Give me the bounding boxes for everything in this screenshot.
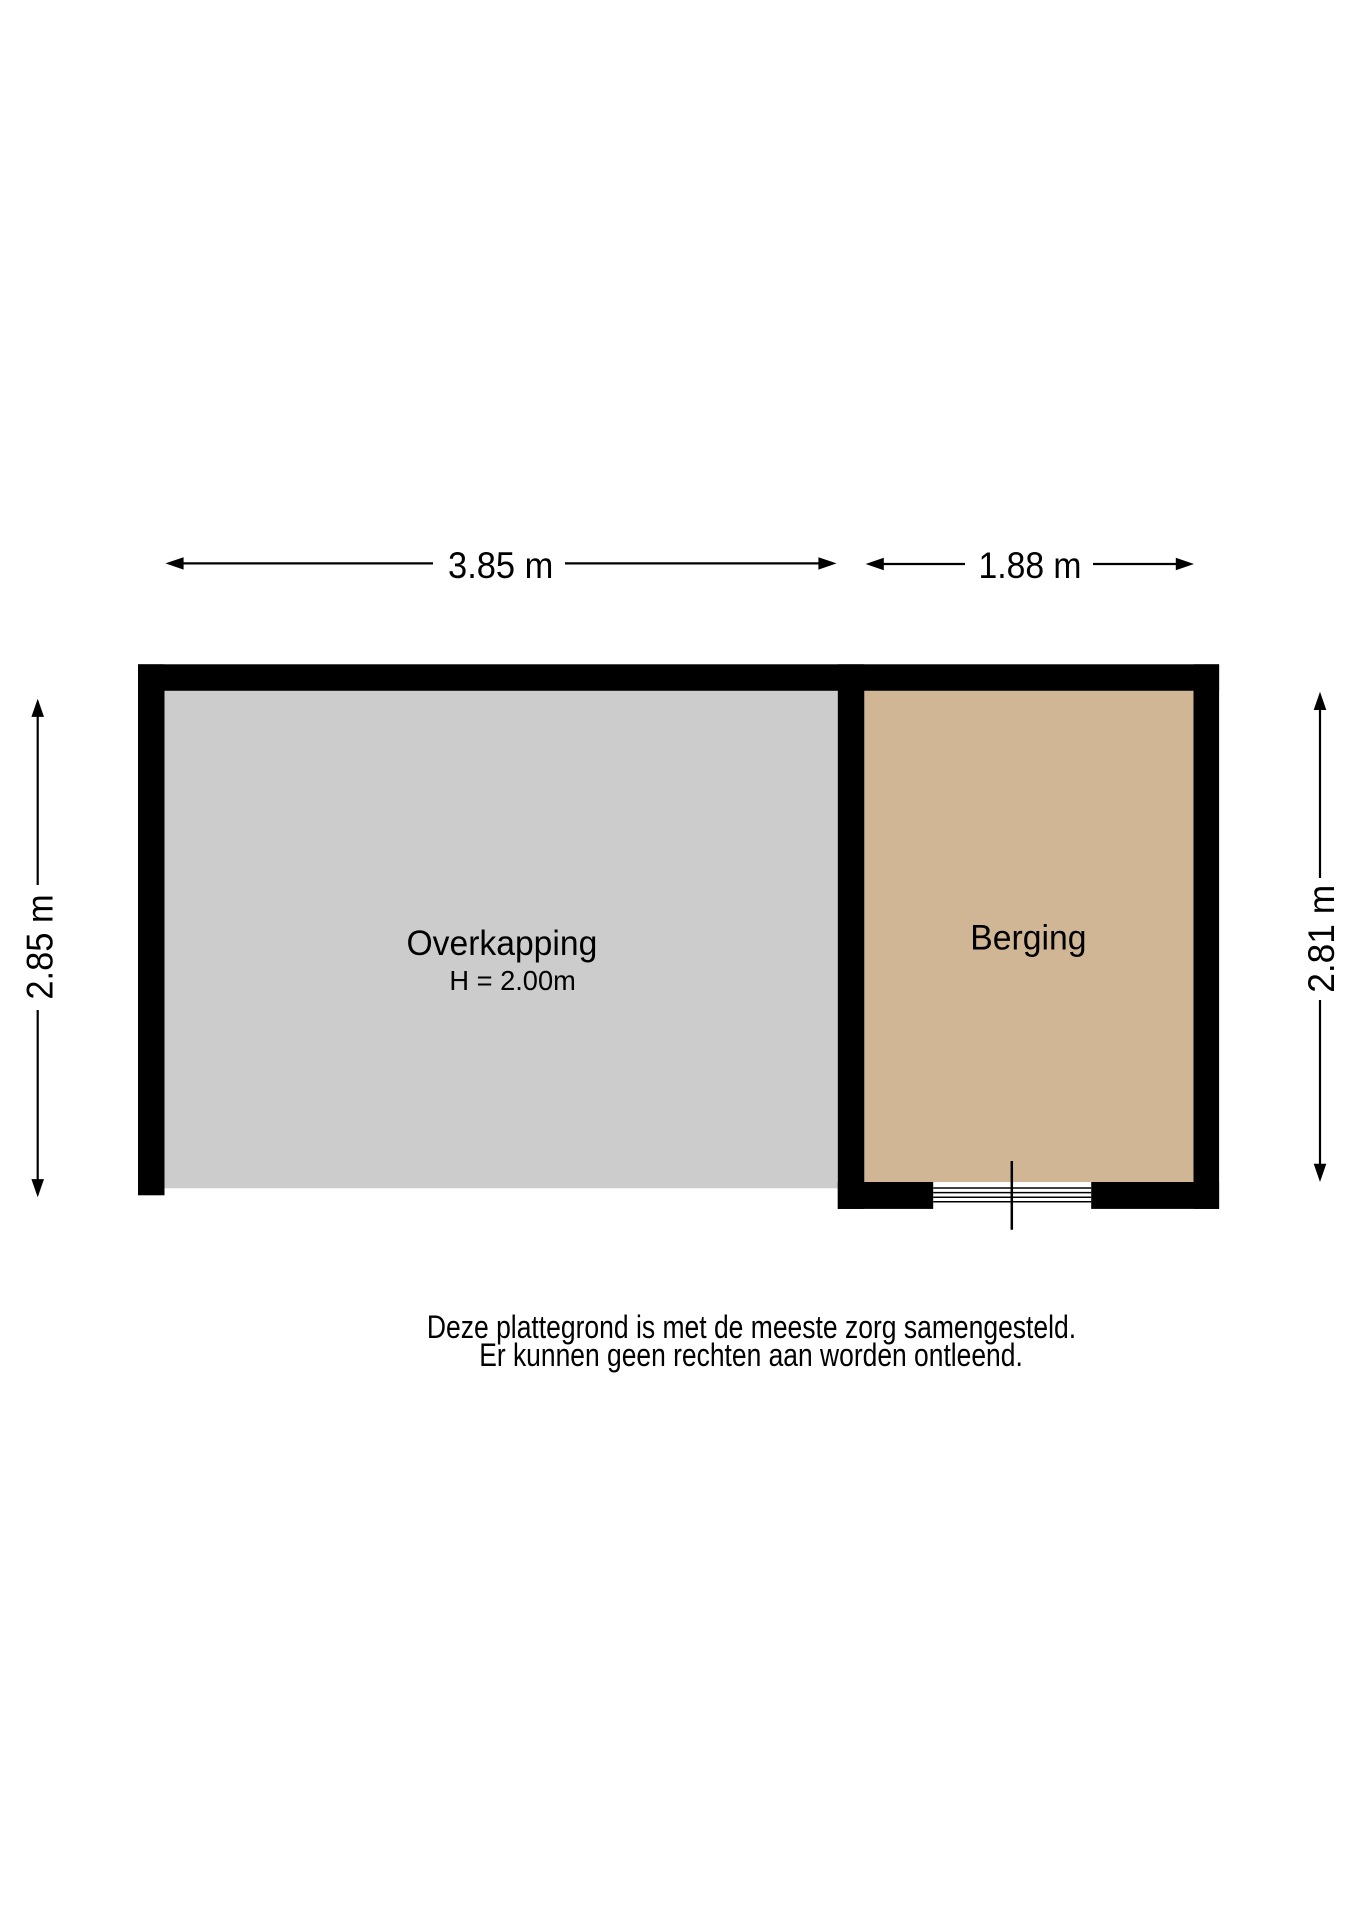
svg-text:Er kunnen geen rechten aan wor: Er kunnen geen rechten aan worden ontlee… [479,1337,1023,1373]
svg-text:Overkapping: Overkapping [407,923,598,963]
svg-text:Berging: Berging [970,918,1086,958]
svg-text:2.81 m: 2.81 m [1300,885,1342,993]
svg-text:3.85 m: 3.85 m [448,544,553,586]
svg-text:2.85 m: 2.85 m [19,894,61,999]
svg-text:H = 2.00m: H = 2.00m [449,965,575,996]
svg-text:1.88 m: 1.88 m [979,544,1082,586]
